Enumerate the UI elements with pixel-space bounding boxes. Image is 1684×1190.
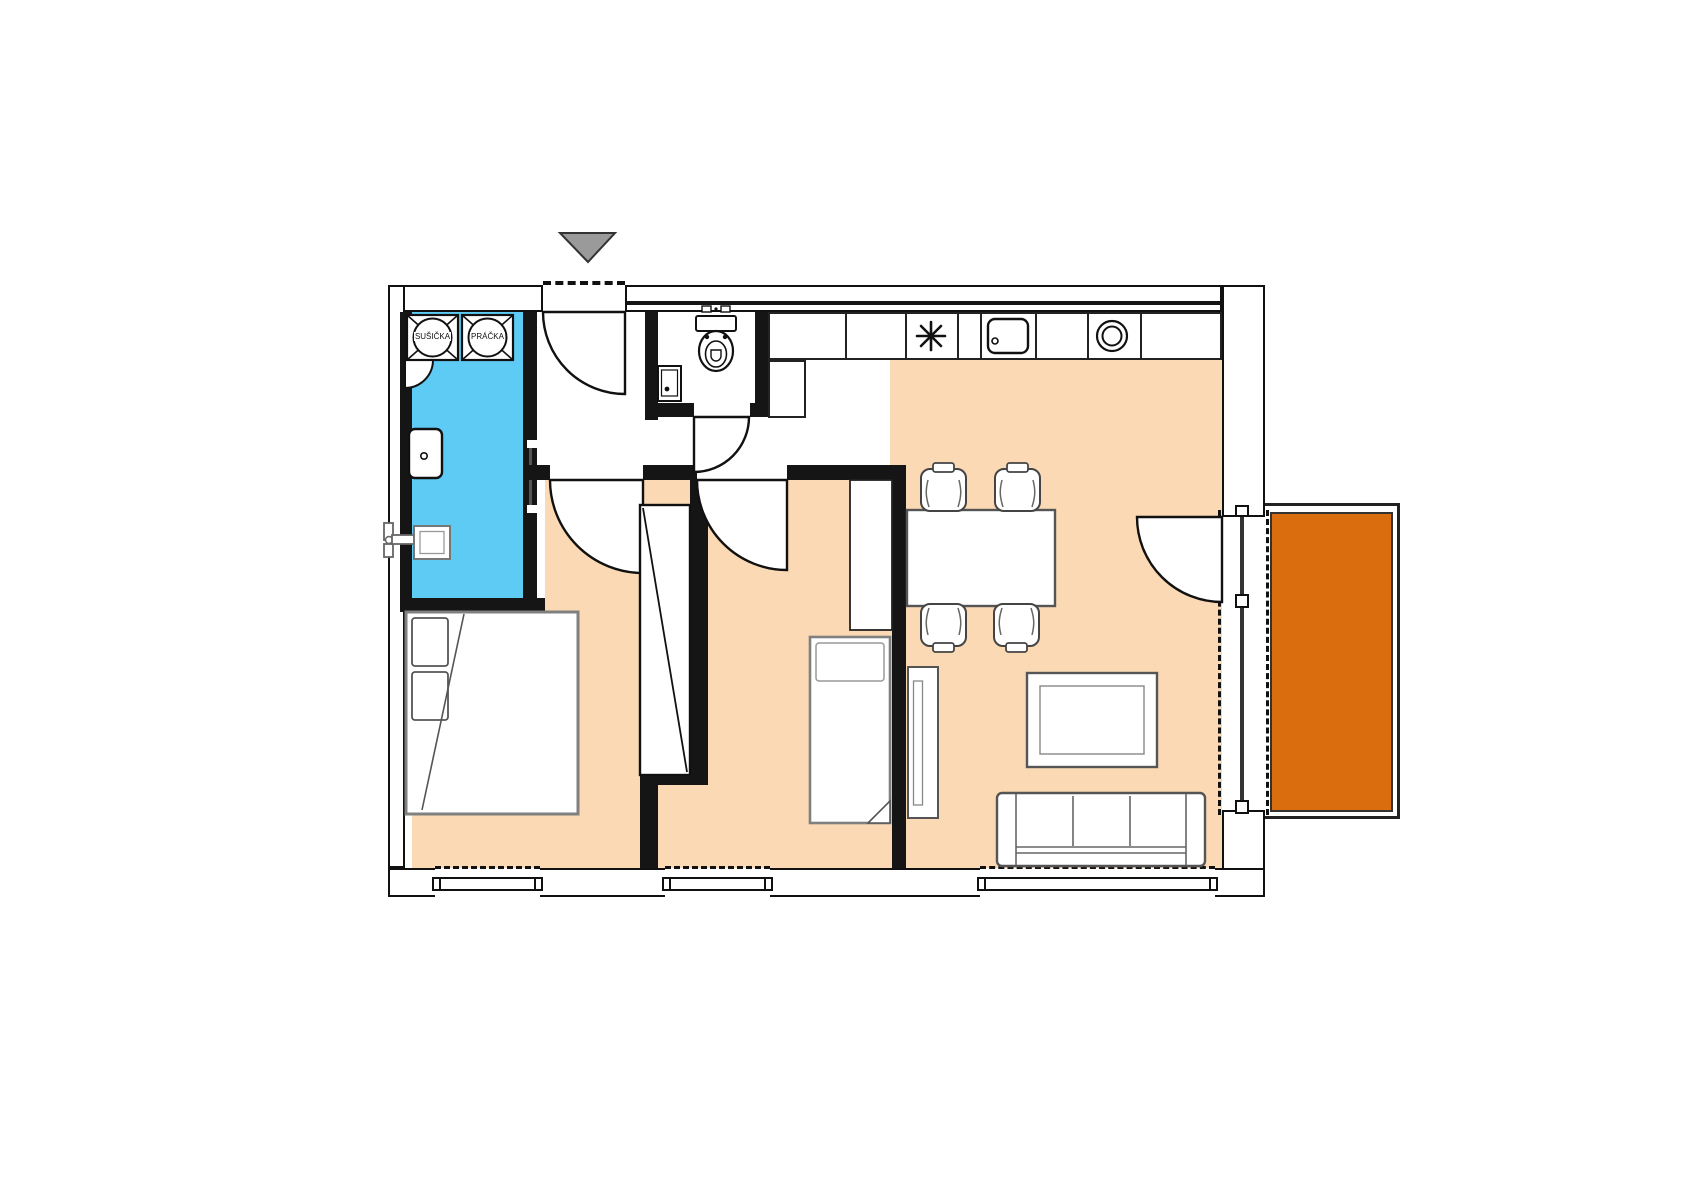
cooktop-icon: [917, 322, 945, 350]
wardrobe-icon: [640, 505, 690, 775]
washbasin-icon: [409, 429, 442, 478]
dining-table-icon: [907, 510, 1055, 606]
round-hob-icon: [1097, 321, 1127, 351]
double-bed-icon: [406, 612, 578, 814]
fixtures-overlay: [0, 0, 1684, 1190]
chair-icon: [921, 463, 966, 511]
entrance-arrow-icon: [560, 233, 615, 262]
chair-icon: [995, 463, 1040, 511]
bedroom1-door-swing-icon: [550, 480, 643, 573]
shower-icon: [384, 523, 450, 559]
single-bed-icon: [810, 637, 890, 823]
kitchen-sink-icon: [988, 319, 1028, 353]
sofa-icon: [997, 793, 1205, 866]
bathroom-door-swing-icon: [405, 360, 433, 388]
dryer-label: SUŠIČKA: [405, 331, 460, 343]
balcony-door-swing-icon: [1137, 517, 1222, 602]
chair-icon: [994, 604, 1039, 652]
chair-icon: [921, 604, 966, 652]
bedroom2-door-swing-icon: [697, 480, 787, 570]
closet-niche-icon: [850, 480, 892, 630]
entrance-door-swing-icon: [543, 312, 625, 394]
coffee-table-icon: [1027, 673, 1157, 767]
wc-door-swing-icon: [694, 417, 749, 472]
small-basin-icon: [658, 366, 681, 401]
tv-bench-icon: [908, 667, 938, 818]
washer-label: PRÁČKA: [460, 331, 515, 343]
toilet-icon: [696, 306, 736, 371]
floor-plan: SUŠIČKA PRÁČKA: [0, 0, 1684, 1190]
